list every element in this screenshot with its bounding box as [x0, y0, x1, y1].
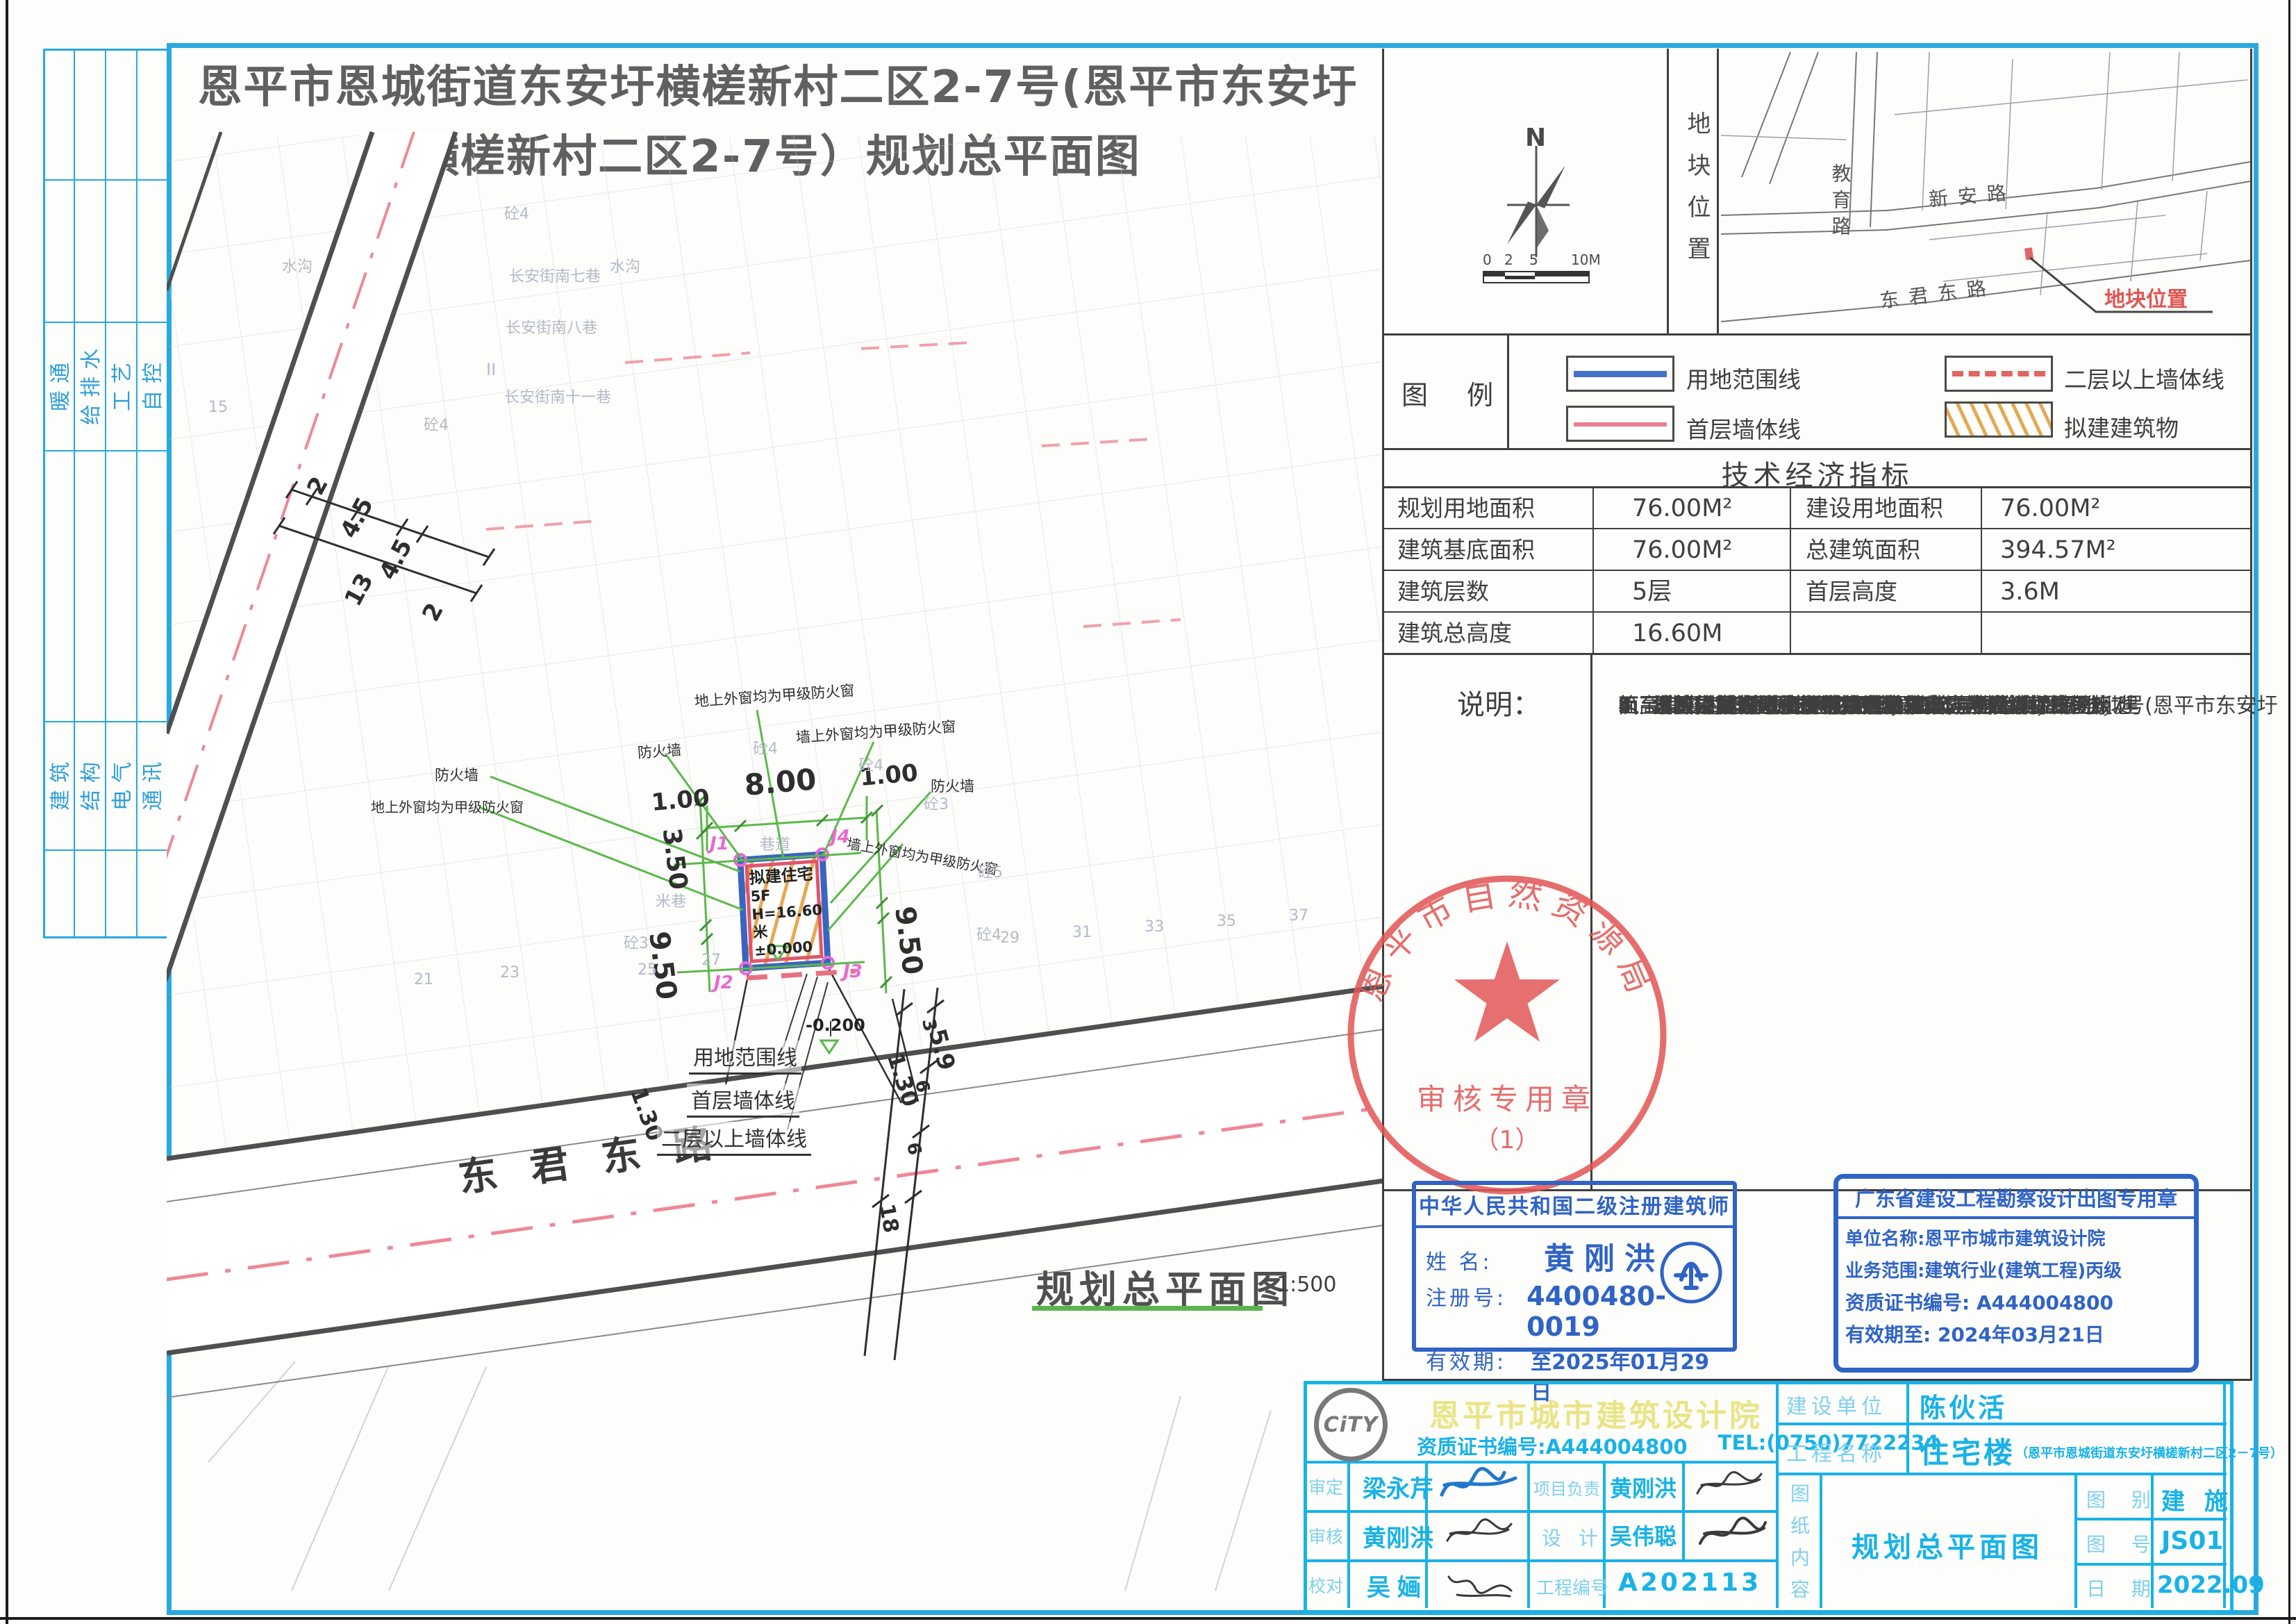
- date-label: 日 期: [2086, 1574, 2161, 1602]
- dimension-label: 8.00: [743, 762, 818, 802]
- sig-role: 审定: [1308, 1474, 1343, 1499]
- indicator-value: 3.6M: [2000, 571, 2060, 613]
- sig-name: 吴伟聪: [1610, 1519, 1677, 1551]
- sig-name: 吴婳: [1367, 1568, 1428, 1602]
- background-label: 水沟: [282, 254, 313, 276]
- background-label: 27: [701, 952, 721, 969]
- background-label: 砼4: [858, 753, 883, 775]
- background-label: 砼3: [624, 931, 649, 953]
- company-name-faint: 恩平市城市建筑设计院: [1429, 1391, 1763, 1435]
- discipline-label: 暖通: [43, 320, 74, 447]
- background-label: 35: [1217, 913, 1236, 930]
- category-label: 图 别: [2086, 1485, 2161, 1513]
- scale-tick: 10M: [1571, 251, 1601, 268]
- indicator-value: 394.57M²: [2000, 529, 2116, 571]
- corner-label: J2: [714, 972, 733, 993]
- design-stamp-title: 广东省建设工程勘察设计出图专用章: [1838, 1179, 2194, 1219]
- sig-role: 设 计: [1542, 1523, 1604, 1551]
- sig-role: 校对: [1308, 1573, 1343, 1598]
- north-arrow-icon: [1493, 139, 1611, 264]
- legend-swatch: [1945, 356, 2053, 392]
- indicator-value: 5层: [1632, 571, 1672, 613]
- legend-label: 首层墙体线: [1686, 411, 1801, 445]
- discipline-label: 通讯: [135, 719, 166, 847]
- wall-line-label: 二层以上墙体线: [657, 1122, 811, 1156]
- location-map: 教育路 新安路 东君东路 地块位置: [1721, 52, 2250, 331]
- architect-emblem-icon: [1658, 1239, 1724, 1306]
- architect-name-label: 姓 名:: [1426, 1245, 1523, 1275]
- map-road-label: 教育路: [1829, 163, 1852, 242]
- background-label: 砼3: [924, 792, 949, 814]
- indicator-label: 首层高度: [1806, 571, 1897, 613]
- notes-label: 说明：: [1457, 682, 1540, 722]
- signature-scribble: [1695, 1513, 1771, 1556]
- sig-role: 审核: [1308, 1523, 1343, 1548]
- project-name-detail: （恩平市恩城街道东安圩横槎新村二区2－7号）: [2015, 1443, 2283, 1461]
- indicator-label: 建设用地面积: [1806, 488, 1943, 529]
- company-cert-no: 资质证书编号:A444004800: [1417, 1431, 1688, 1460]
- discipline-label: 电气: [105, 719, 135, 847]
- discipline-label: 建筑: [43, 719, 74, 847]
- signature-scribble: [1693, 1467, 1766, 1503]
- background-label: 砼4: [504, 201, 529, 224]
- signature-scribble: [1438, 1464, 1521, 1506]
- content-label: 图 纸 内 容: [1782, 1478, 1818, 1606]
- background-label: 23: [500, 964, 519, 981]
- design-stamp-scope: 业务范围:建筑行业(建筑工程)丙级: [1845, 1255, 2187, 1287]
- project-label: 工程名称: [1786, 1436, 1886, 1467]
- indicator-label: 总建筑面积: [1806, 529, 1920, 571]
- legend-label: 用地范围线: [1686, 361, 1801, 395]
- sheet-no-label: 图 号: [2086, 1530, 2161, 1557]
- caption-underline: [1032, 1306, 1263, 1311]
- background-label: 砼5: [978, 860, 1003, 882]
- dimension-label: 1.00: [650, 784, 710, 817]
- architect-valid-label: 有效期:: [1426, 1345, 1520, 1375]
- scan-edge-bottom: [0, 1617, 2296, 1620]
- owner-name: 陈伙活: [1920, 1386, 2007, 1425]
- legend-label: 拟建建筑物: [2064, 410, 2179, 443]
- discipline-label: 结构: [74, 719, 104, 847]
- indicator-label: 建筑总高度: [1397, 613, 1512, 654]
- sheet-no: JS01: [2161, 1527, 2223, 1555]
- legend-title: 图 例: [1401, 374, 1508, 412]
- drawing-sheet: 暖通 给排水 工艺 自控 建筑 结构 电气 通讯 恩平市恩城街道东安圩横槎新村二…: [0, 0, 2296, 1624]
- scan-edge-right: [2288, 0, 2290, 1624]
- scale-tick: 2: [1504, 251, 1513, 268]
- discipline-label: 给排水: [74, 320, 104, 447]
- design-stamp-company: 单位名称:恩平市城市建筑设计院: [1845, 1223, 2187, 1255]
- architect-stamp-title: 中华人民共和国二级注册建筑师: [1416, 1185, 1733, 1228]
- plan-annotation: 地上外窗均为甲级防火窗: [371, 796, 524, 816]
- indicator-value: 76.00M²: [1632, 529, 1732, 571]
- design-stamp-valid: 有效期至: 2024年03月21日: [1845, 1319, 2187, 1351]
- owner-label: 建设单位: [1786, 1389, 1886, 1420]
- sig-name: 黄刚洪: [1363, 1519, 1433, 1553]
- location-panel-label: 地块位置: [1675, 111, 1711, 278]
- scale-bar: 02510M: [1479, 251, 1604, 286]
- sheet-content: 规划总平面图: [1822, 1525, 2072, 1565]
- wall-line-label: 首层墙体线: [687, 1084, 799, 1118]
- background-label: 巷道: [760, 832, 790, 854]
- background-label: 长安街南十一巷: [504, 385, 611, 407]
- scale-tick: 0: [1483, 251, 1492, 268]
- map-road-label: 新安路: [1928, 181, 2017, 211]
- background-label: 长安街南八巷: [506, 315, 597, 338]
- background-label: 37: [1289, 907, 1308, 925]
- company-logo: CiTY: [1314, 1388, 1388, 1461]
- background-label: 21: [414, 971, 433, 988]
- project-number: A202113: [1618, 1568, 1761, 1597]
- level-label: -0.200: [806, 1016, 865, 1035]
- background-label: 砼4: [424, 413, 449, 435]
- architect-stamp: 中华人民共和国二级注册建筑师 姓 名: 黄刚洪 注册号: 4400480-001…: [1412, 1181, 1737, 1352]
- background-label: 米巷: [656, 889, 686, 911]
- building-height: H=16.60米: [751, 900, 837, 942]
- sig-role: 工程编号: [1536, 1574, 1608, 1600]
- indicator-value: 76.00M²: [2000, 488, 2100, 529]
- corner-label: J1: [710, 834, 729, 854]
- architect-name: 黄刚洪: [1544, 1234, 1665, 1278]
- architect-reg-label: 注册号:: [1426, 1281, 1515, 1311]
- building-label: 拟建住宅 5F H=16.60米 ±0.000: [749, 864, 838, 960]
- legend-label: 二层以上墙体线: [2064, 361, 2224, 395]
- dimension-label: 18: [874, 1202, 904, 1234]
- background-label: 水沟: [610, 254, 640, 276]
- background-label: 砼4: [753, 736, 778, 759]
- corner-label: J3: [843, 961, 863, 982]
- sig-name: 梁永芹: [1363, 1470, 1433, 1504]
- signature-scribble: [1443, 1516, 1516, 1552]
- indicator-label: 建筑基底面积: [1397, 529, 1535, 571]
- background-label: II: [486, 360, 496, 379]
- background-label: 33: [1145, 918, 1164, 936]
- legend-swatch: [1566, 406, 1674, 442]
- indicator-value: 76.00M²: [1632, 488, 1732, 529]
- background-label: 29: [1000, 929, 1020, 947]
- plan-annotation: 防火墙: [637, 739, 682, 763]
- map-road-label: 东君东路: [1879, 276, 1997, 313]
- note-line: 筑高度应为室外设计地面至其屋面面层的高度；: [1618, 693, 2056, 719]
- background-label: 砼4: [976, 922, 1001, 945]
- discipline-label: 工艺: [105, 320, 135, 447]
- indicator-label: 规划用地面积: [1397, 488, 1535, 529]
- project-name: 住宅楼: [1920, 1430, 2015, 1472]
- background-label: 31: [1072, 924, 1092, 941]
- plan-annotation: 防火墙: [435, 764, 479, 785]
- wall-line-label: 用地范围线: [689, 1041, 801, 1075]
- legend-swatch: [1945, 401, 2053, 438]
- date-value: 2022.09: [2157, 1571, 2265, 1599]
- design-stamp-cert: 资质证书编号: A444004800: [1845, 1287, 2187, 1319]
- sig-name: 黄刚洪: [1610, 1471, 1677, 1503]
- signature-scribble: [1443, 1563, 1520, 1603]
- design-stamp: 广东省建设工程勘察设计出图专用章 单位名称:恩平市城市建筑设计院 业务范围:建筑…: [1833, 1174, 2199, 1373]
- discipline-label: 自控: [135, 320, 166, 447]
- background-label: 25: [638, 961, 657, 979]
- map-marker-label: 地块位置: [2104, 288, 2188, 312]
- background-label: 15: [208, 399, 228, 416]
- background-label: 长安街南七巷: [509, 264, 601, 286]
- scale-tick: 5: [1529, 251, 1538, 268]
- scan-edge-left: [6, 0, 8, 1624]
- legend-swatch: [1566, 356, 1674, 392]
- indicator-value: 16.60M: [1632, 613, 1722, 654]
- plan-scale: 1:500: [1276, 1273, 1336, 1297]
- indicator-label: 建筑层数: [1397, 571, 1489, 613]
- category-value: 建 施: [2161, 1482, 2233, 1516]
- sig-role: 项目负责: [1533, 1475, 1600, 1500]
